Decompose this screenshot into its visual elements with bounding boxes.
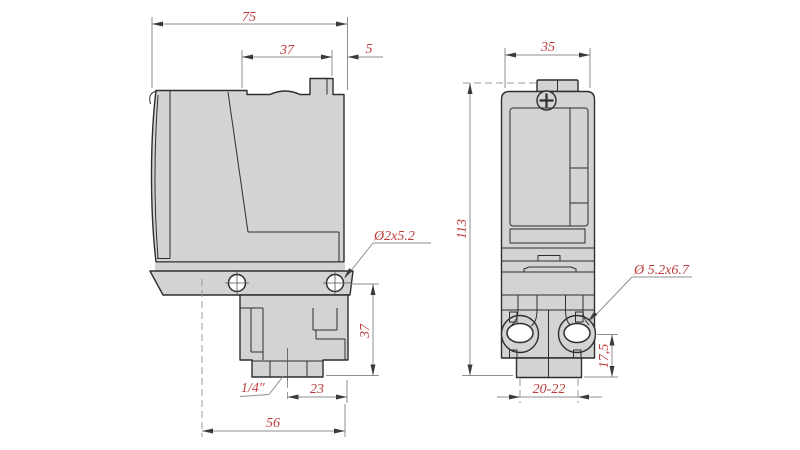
dim-front-width: 35 bbox=[540, 40, 555, 55]
dim-port-to-edge: 23 bbox=[310, 382, 324, 397]
dim-port-thread: 1/4″ bbox=[241, 381, 265, 396]
front-screw bbox=[537, 91, 556, 110]
dim-lower-height: 37 bbox=[358, 323, 373, 339]
dim-hole-spacing: 20-22 bbox=[533, 382, 566, 397]
side-housing-body bbox=[152, 79, 345, 263]
side-view: 75 37 5 Ø2x5.2 37 1 bbox=[150, 10, 431, 437]
dim-overall-width: 75 bbox=[242, 10, 256, 25]
dim-front-height: 113 bbox=[455, 219, 470, 239]
front-slot-hole-right bbox=[564, 324, 590, 343]
front-view: 35 113 Ø 5.2x6.7 17,5 bbox=[455, 40, 692, 403]
front-hex-nut bbox=[517, 358, 582, 378]
front-slot-bosses bbox=[502, 310, 596, 358]
dim-slot-to-bottom: 17,5 bbox=[597, 344, 612, 369]
dimension-drawing: 75 37 5 Ø2x5.2 37 1 bbox=[0, 0, 800, 450]
drawing-canvas: 75 37 5 Ø2x5.2 37 1 bbox=[0, 0, 800, 450]
front-slot-hole-left bbox=[507, 324, 533, 343]
side-pressure-block bbox=[240, 295, 348, 377]
dim-base-width: 56 bbox=[266, 416, 280, 431]
side-mounting-plate bbox=[150, 271, 353, 295]
dim-upper-width: 37 bbox=[279, 43, 295, 58]
dim-slot-note: Ø 5.2x6.7 bbox=[633, 263, 690, 278]
dim-mount-hole-note: Ø2x5.2 bbox=[373, 229, 415, 244]
dim-top-offset: 5 bbox=[366, 42, 373, 57]
